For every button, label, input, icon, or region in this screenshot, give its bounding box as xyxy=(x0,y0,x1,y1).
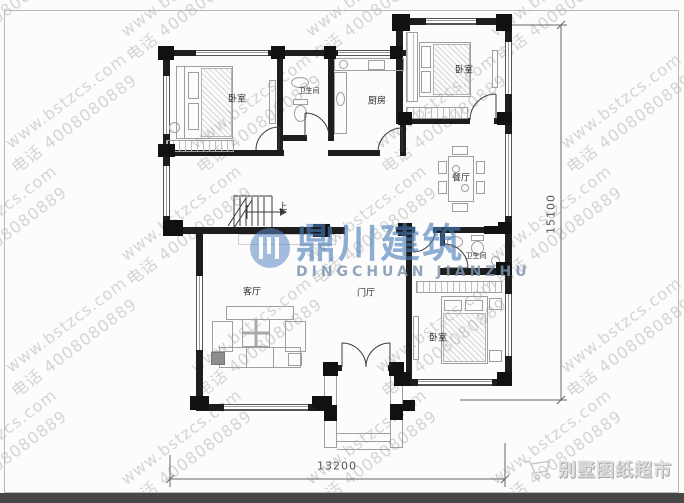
chair xyxy=(438,161,447,174)
footer-bar xyxy=(0,493,684,503)
floor-plan-drawing xyxy=(0,0,684,503)
wall xyxy=(440,233,445,246)
column-pillar xyxy=(389,362,404,376)
window xyxy=(338,50,394,56)
room-label-foyer: 门厅 xyxy=(357,286,375,299)
shopping-cart-icon xyxy=(522,453,555,484)
column-pillar xyxy=(324,405,337,421)
column-pillar xyxy=(323,362,338,376)
chair xyxy=(438,181,447,194)
room-label-dining-room: 餐厅 xyxy=(452,171,470,184)
window xyxy=(505,134,512,216)
room-label-kitchen: 厨房 xyxy=(368,94,386,107)
bed-blanket xyxy=(443,313,486,362)
window xyxy=(418,379,492,386)
stairs-up-label: 上 xyxy=(278,200,287,213)
wall xyxy=(277,135,307,141)
chair xyxy=(452,146,468,155)
room-label-living-room: 客厅 xyxy=(243,285,261,298)
window xyxy=(196,276,203,350)
column-pillar xyxy=(390,404,403,420)
dimension-height: 15100 xyxy=(545,194,558,234)
column-pillar xyxy=(158,46,174,60)
room-label-bedroom-top-right: 卧室 xyxy=(455,63,473,76)
washbasin xyxy=(447,236,463,248)
wall xyxy=(328,150,380,156)
column-pillar xyxy=(398,112,412,125)
window xyxy=(224,404,308,411)
kitchen-sink xyxy=(336,92,345,106)
column-pillar xyxy=(271,46,285,59)
pillow xyxy=(188,72,199,99)
wall xyxy=(406,227,412,386)
window xyxy=(163,166,170,216)
pillow xyxy=(444,300,462,311)
window xyxy=(196,50,268,56)
column-pillar xyxy=(163,220,183,236)
column-pillar xyxy=(392,14,410,31)
pillow xyxy=(421,46,431,68)
room-label-bathroom-top: 卫生间 xyxy=(299,86,320,96)
wall xyxy=(396,18,403,124)
porch-step xyxy=(337,449,390,450)
porch-step xyxy=(337,441,390,442)
toilet xyxy=(294,105,307,122)
window xyxy=(505,294,512,356)
column-pillar xyxy=(497,112,512,125)
room-label-bedroom-bottom-right: 卧室 xyxy=(429,331,447,344)
tv-cabinet xyxy=(269,80,276,124)
column-pillar xyxy=(158,144,175,157)
wardrobe xyxy=(406,32,418,102)
brand-text: 别墅图纸超市 xyxy=(558,456,672,482)
pillow xyxy=(188,103,199,130)
tv-cabinet xyxy=(413,316,419,360)
kitchen-sink xyxy=(339,60,348,69)
dresser xyxy=(406,107,468,119)
chair xyxy=(452,203,468,212)
column-pillar xyxy=(403,400,415,411)
pillow xyxy=(421,71,431,93)
column-pillar xyxy=(312,396,324,407)
floor-plan-page: www.bstzcs.com电话 4008080889www.bstzcs.co… xyxy=(0,0,684,503)
column-pillar xyxy=(324,46,336,59)
column-pillar xyxy=(313,224,330,237)
room-label-bedroom-top-left: 卧室 xyxy=(228,92,246,105)
column-pillar xyxy=(190,396,209,410)
tv-console xyxy=(226,306,294,320)
chair xyxy=(476,161,485,174)
column-pillar xyxy=(496,14,512,31)
nightstand xyxy=(489,350,502,362)
nightstand xyxy=(489,298,502,310)
wardrobe xyxy=(416,281,502,293)
window xyxy=(505,42,512,94)
side-table xyxy=(288,353,302,366)
stove xyxy=(368,60,385,70)
column-pillar xyxy=(498,222,512,234)
porch-step xyxy=(337,433,390,434)
room-label-bathroom-right: 卫生间 xyxy=(466,251,487,261)
tea-table xyxy=(242,319,270,347)
tv-cabinet xyxy=(492,50,498,88)
column-pillar xyxy=(496,262,512,275)
pillow xyxy=(465,300,483,311)
column-pillar xyxy=(390,46,402,59)
brand-badge: 别墅图纸超市 xyxy=(524,455,672,482)
dimension-width: 13200 xyxy=(317,460,357,473)
window xyxy=(426,18,476,25)
plate xyxy=(461,184,469,192)
sofa-divider xyxy=(273,348,274,367)
wardrobe xyxy=(166,140,234,152)
sofa-divider xyxy=(246,348,247,367)
column-pillar xyxy=(398,223,412,236)
chair xyxy=(476,181,485,194)
column-pillar xyxy=(497,372,512,386)
stool xyxy=(169,122,180,133)
plant xyxy=(211,352,225,365)
